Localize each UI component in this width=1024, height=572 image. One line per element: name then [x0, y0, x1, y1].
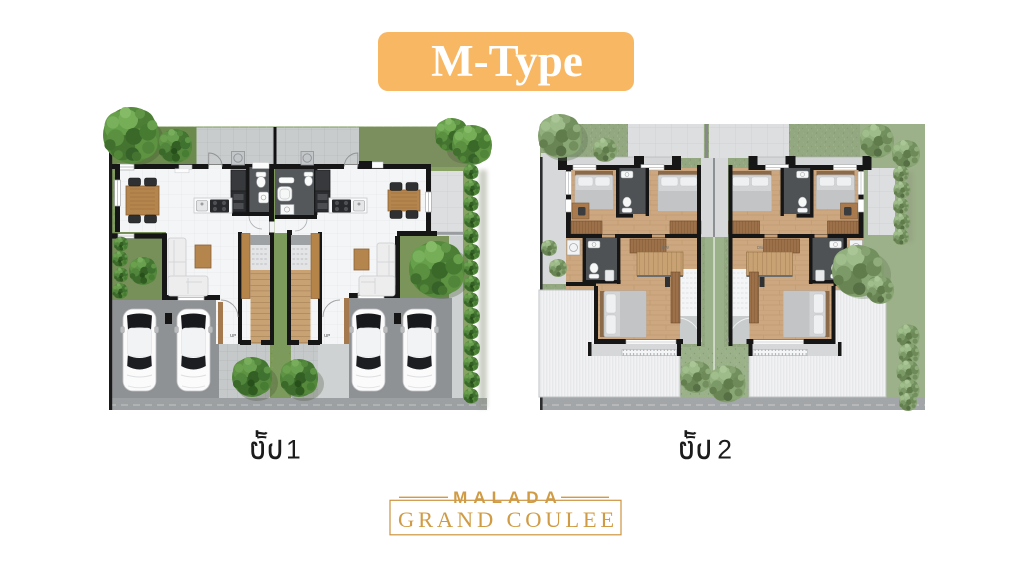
svg-text:M-Type: M-Type: [431, 36, 583, 86]
svg-text:UP: UP: [230, 333, 236, 338]
svg-text:1: 1: [286, 434, 301, 464]
svg-text:MALADA: MALADA: [453, 488, 563, 507]
svg-text:GRAND COULEE: GRAND COULEE: [398, 507, 618, 532]
svg-text:UP: UP: [324, 333, 330, 338]
svg-text:DW: DW: [662, 245, 669, 250]
svg-text:DW: DW: [757, 245, 764, 250]
svg-text:2: 2: [717, 434, 732, 464]
